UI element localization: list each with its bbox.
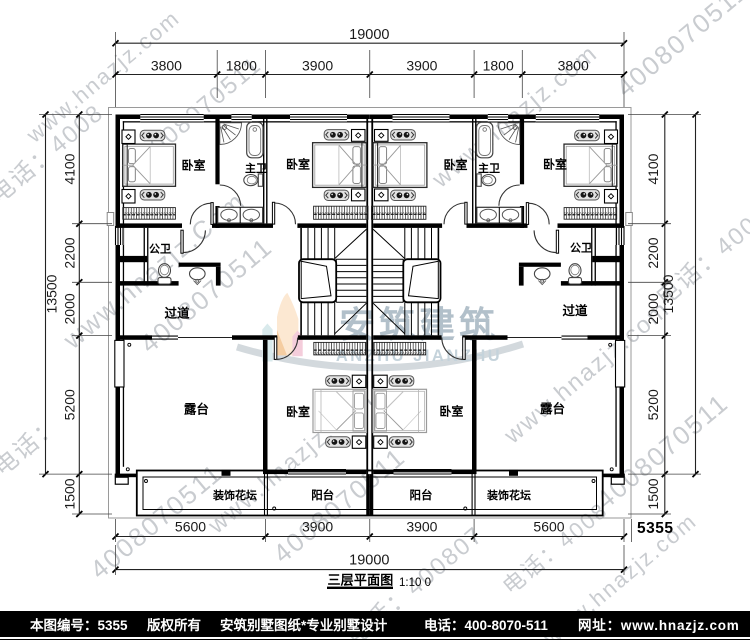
svg-text:电话：: 电话： <box>0 411 66 482</box>
svg-text:露台: 露台 <box>540 401 565 416</box>
svg-text:1500: 1500 <box>62 478 78 509</box>
svg-text:5355: 5355 <box>637 520 673 537</box>
svg-text:公卫: 公卫 <box>149 242 171 255</box>
svg-text:4100: 4100 <box>645 153 661 184</box>
svg-text:卧室: 卧室 <box>443 157 467 172</box>
svg-text:阳台: 阳台 <box>410 488 433 502</box>
svg-text:3800: 3800 <box>151 58 182 74</box>
svg-text:2000: 2000 <box>62 293 78 324</box>
svg-text:公卫: 公卫 <box>570 241 592 254</box>
svg-text:5600: 5600 <box>533 519 564 535</box>
svg-text:4100: 4100 <box>62 153 78 184</box>
svg-text:13500: 13500 <box>660 274 676 313</box>
svg-text:3900: 3900 <box>406 519 437 535</box>
svg-text:19000: 19000 <box>349 27 389 43</box>
svg-text:卧室: 卧室 <box>543 157 567 172</box>
svg-text:卧室: 卧室 <box>439 404 463 419</box>
svg-text:露台: 露台 <box>184 401 209 416</box>
svg-text:5200: 5200 <box>62 389 78 420</box>
svg-text:5200: 5200 <box>645 389 661 420</box>
svg-text:2200: 2200 <box>62 237 78 268</box>
svg-text:过道: 过道 <box>562 303 588 318</box>
svg-text:4008070511: 4008070511 <box>610 0 750 103</box>
svg-text:1500: 1500 <box>645 478 661 509</box>
svg-text:2000: 2000 <box>645 293 661 324</box>
svg-text:13500: 13500 <box>44 274 60 313</box>
svg-text:3800: 3800 <box>558 58 589 74</box>
svg-text:3900: 3900 <box>406 58 437 74</box>
svg-text:主卫: 主卫 <box>478 161 500 175</box>
svg-text:三层平面图: 三层平面图 <box>327 572 393 587</box>
svg-text:3900: 3900 <box>302 58 333 74</box>
svg-text:阳台: 阳台 <box>311 488 334 502</box>
svg-text:1800: 1800 <box>483 58 514 74</box>
svg-text:主卫: 主卫 <box>245 161 267 175</box>
svg-text:1800: 1800 <box>226 58 257 74</box>
svg-text:过道: 过道 <box>164 306 190 321</box>
svg-text:1:10 0: 1:10 0 <box>399 577 431 589</box>
svg-text:4008070511: 4008070511 <box>590 387 734 515</box>
svg-text:19000: 19000 <box>349 553 389 569</box>
svg-text:卧室: 卧室 <box>181 158 205 173</box>
svg-text:装饰花坛: 装饰花坛 <box>486 488 531 502</box>
svg-text:卧室: 卧室 <box>286 404 310 419</box>
svg-text:卧室: 卧室 <box>286 157 310 172</box>
svg-text:5600: 5600 <box>175 519 206 535</box>
svg-text:装饰花坛: 装饰花坛 <box>212 488 257 502</box>
svg-text:2200: 2200 <box>645 237 661 268</box>
svg-text:3900: 3900 <box>302 519 333 535</box>
